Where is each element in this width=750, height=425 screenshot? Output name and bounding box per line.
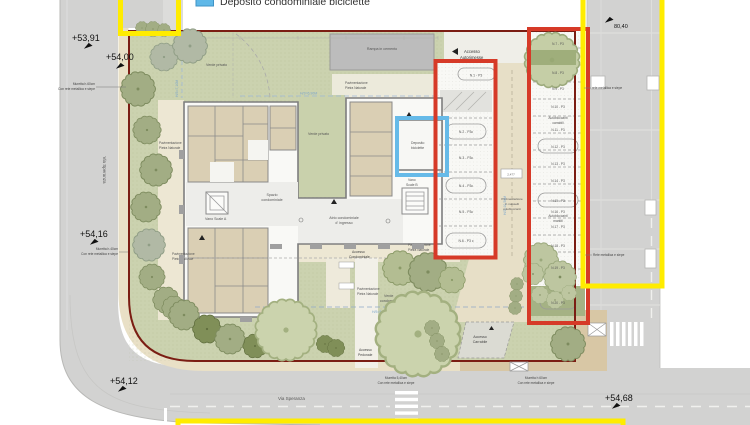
svg-text:Via Speranza: Via Speranza	[278, 396, 305, 401]
svg-text:Deposito: Deposito	[411, 141, 424, 145]
svg-text:Autobloccanti: Autobloccanti	[548, 116, 567, 120]
svg-text:Verde privato: Verde privato	[206, 63, 227, 67]
svg-text:80,40: 80,40	[614, 24, 628, 30]
svg-text:Condominiale: Condominiale	[349, 255, 370, 259]
svg-text:N.18 - P3: N.18 - P3	[551, 244, 565, 248]
svg-text:H/2=10,50M: H/2=10,50M	[503, 196, 507, 215]
svg-text:biciclette: biciclette	[411, 146, 424, 150]
svg-text:+54,00: +54,00	[106, 52, 134, 62]
svg-text:Pietra Naturale: Pietra Naturale	[357, 292, 378, 296]
svg-text:Autobloccanti: Autobloccanti	[548, 214, 567, 218]
svg-text:Muretta h 60cm: Muretta h 60cm	[525, 376, 547, 380]
svg-text:N.13 - P3: N.13 - P3	[551, 162, 565, 166]
svg-text:in masselli: in masselli	[505, 202, 519, 206]
svg-text:N.16 - P3: N.16 - P3	[551, 210, 565, 214]
svg-text:+54,68: +54,68	[605, 393, 633, 403]
svg-text:d' ingresso: d' ingresso	[335, 221, 352, 225]
svg-text:N.14 - P3: N.14 - P3	[551, 179, 565, 183]
svg-text:Atrio condominiale: Atrio condominiale	[329, 216, 359, 220]
svg-text:Accesso: Accesso	[473, 335, 487, 339]
svg-text:Scale B: Scale B	[406, 183, 418, 187]
svg-text:N.4 - P3c: N.4 - P3c	[459, 184, 473, 188]
svg-text:N.8 - P3: N.8 - P3	[552, 71, 564, 75]
svg-text:Con rete metallica e siepe: Con rete metallica e siepe	[378, 381, 415, 385]
svg-text:N.9 - P3: N.9 - P3	[552, 87, 564, 91]
svg-text:H/3=6,90M: H/3=6,90M	[300, 92, 317, 96]
svg-text:N.10 - P3: N.10 - P3	[551, 105, 565, 109]
svg-text:Spazio: Spazio	[267, 193, 278, 197]
svg-text:Via Speranza: Via Speranza	[102, 157, 107, 184]
svg-text:Carrabile: Carrabile	[473, 340, 488, 344]
svg-text:N.15 - P3: N.15 - P3	[551, 199, 565, 203]
svg-text:Muretta 5,40cm: Muretta 5,40cm	[385, 376, 407, 380]
svg-text:Con rete metallica e siepe: Con rete metallica e siepe	[518, 381, 555, 385]
svg-text:Vano: Vano	[408, 178, 416, 182]
svg-text:N.11 - P3: N.11 - P3	[551, 128, 564, 132]
svg-text:Accesso: Accesso	[359, 348, 372, 352]
svg-text:Muretta h.60cm: Muretta h.60cm	[73, 82, 95, 86]
svg-text:+53,91: +53,91	[72, 33, 100, 43]
svg-text:markiti: markiti	[553, 219, 563, 223]
svg-text:Pietra Naturale: Pietra Naturale	[345, 86, 366, 90]
svg-text:N.3 - P3c: N.3 - P3c	[459, 156, 473, 160]
svg-text:condominiale: condominiale	[261, 198, 282, 202]
svg-text:Deposito condominiale biciclet: Deposito condominiale biciclette	[220, 0, 370, 8]
svg-text:Pedonale: Pedonale	[358, 353, 372, 357]
svg-text:+54,16: +54,16	[80, 229, 108, 239]
svg-text:Verde privato: Verde privato	[308, 132, 329, 136]
svg-text:Accesso: Accesso	[352, 250, 365, 254]
svg-text:Pietra Naturale: Pietra Naturale	[159, 146, 180, 150]
svg-text:rete metallica e siepe: rete metallica e siepe	[592, 86, 622, 90]
svg-text:Con rete metallica e siepe: Con rete metallica e siepe	[81, 252, 118, 256]
svg-text:N.6 - P3 c: N.6 - P3 c	[458, 239, 473, 243]
svg-text:N.20 - P3: N.20 - P3	[551, 301, 565, 305]
svg-text:Pavimentazione: Pavimentazione	[345, 81, 368, 85]
svg-text:Muretta h.40cm: Muretta h.40cm	[96, 247, 118, 251]
svg-text:Accesso: Accesso	[464, 49, 480, 54]
svg-text:N.7 - P3: N.7 - P3	[552, 42, 564, 46]
svg-text:N.17 - P3: N.17 - P3	[551, 225, 565, 229]
svg-text:+54,12: +54,12	[110, 376, 138, 386]
svg-text:N.12 - P3: N.12 - P3	[551, 145, 565, 149]
svg-text:H/3=7,10M: H/3=7,10M	[175, 80, 179, 97]
svg-text:Rampa in cemento: Rampa in cemento	[367, 47, 397, 51]
svg-text:Con rete metallica e siepe: Con rete metallica e siepe	[58, 87, 95, 91]
svg-text:N.19 - P3: N.19 - P3	[551, 266, 565, 270]
svg-text:Rete metallica e siepe: Rete metallica e siepe	[593, 253, 625, 257]
svg-text:Vano Scale A: Vano Scale A	[205, 217, 227, 221]
svg-text:2,477: 2,477	[507, 173, 515, 177]
svg-text:N.5 - P3c: N.5 - P3c	[459, 210, 473, 214]
svg-text:Verde: Verde	[384, 294, 393, 298]
svg-text:N.1 - P3: N.1 - P3	[470, 74, 483, 78]
svg-text:carrabili: carrabili	[552, 121, 563, 125]
svg-text:Pavimentazione: Pavimentazione	[159, 141, 182, 145]
svg-text:Pavimentazione: Pavimentazione	[357, 287, 380, 291]
svg-text:N.2 - P3c: N.2 - P3c	[459, 130, 473, 134]
